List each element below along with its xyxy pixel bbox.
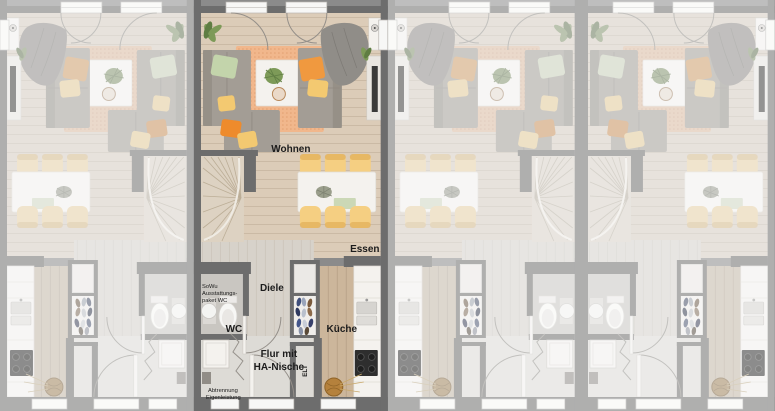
kitchen-sink	[357, 302, 377, 314]
label-wc: WC	[225, 324, 242, 335]
label-flur-1: Flur mit	[260, 349, 297, 360]
dim-overlay	[0, 0, 194, 411]
label-partition-1: Abtrennung	[208, 388, 238, 394]
unit-3[interactable]: Wohnen Essen Diele WC Küche Flur mit HA-…	[388, 0, 582, 411]
unit-1[interactable]: Wohnen Essen Diele WC Küche Flur mit HA-…	[0, 0, 194, 411]
label-wc-package-1: SoWu	[202, 284, 218, 290]
label-wc-package-3: paket WC	[202, 298, 227, 304]
label-wohnen: Wohnen	[271, 144, 310, 155]
entrance-door	[249, 399, 294, 409]
label-essen: Essen	[350, 244, 379, 255]
label-diele: Diele	[260, 283, 284, 294]
wc-door-leaf	[243, 316, 246, 354]
floorplan-drawing: Wohnen Essen Diele WC Küche Flur mit HA-…	[581, 0, 775, 411]
sink	[201, 304, 216, 319]
unit-4[interactable]: Wohnen Essen Diele WC Küche Flur mit HA-…	[581, 0, 775, 411]
dining-set	[298, 154, 376, 228]
dim-overlay	[581, 0, 775, 411]
cooktop	[355, 350, 378, 376]
floorplan-row: Wohnen Essen Diele WC Küche Flur mit HA-…	[0, 0, 775, 411]
window	[321, 399, 356, 409]
label-kueche: Küche	[326, 324, 357, 335]
bowl	[272, 88, 285, 101]
pillow-yellow	[236, 130, 257, 149]
faucet	[365, 299, 368, 302]
floorplan-drawing: Wohnen Essen Diele WC Küche Flur mit HA-…	[0, 0, 194, 411]
tv	[372, 66, 378, 112]
pillow-green	[210, 54, 238, 79]
pillow-orange	[298, 56, 325, 82]
cabinet	[202, 372, 211, 384]
pillow-yellow	[217, 95, 236, 112]
pillow-yellow	[307, 79, 329, 98]
washer	[203, 340, 229, 368]
label-elt: ELT	[302, 365, 309, 377]
label-partition-2: Eigenleistung	[206, 395, 241, 401]
centerpiece	[316, 186, 332, 198]
label-wc-package-2: Ausstattungs-	[202, 291, 237, 297]
window	[379, 20, 388, 50]
shoe-shelf	[294, 264, 316, 335]
coffee-table	[256, 60, 300, 106]
dim-overlay	[388, 0, 582, 411]
floorplan-drawing: Wohnen Essen Diele WC Küche Flur mit HA-…	[388, 0, 582, 411]
kitchen-counter	[354, 266, 381, 397]
tv-board	[367, 56, 381, 120]
floorplan-drawing: Wohnen Essen Diele WC Küche Flur mit HA-…	[194, 0, 388, 411]
label-flur-2: HA-Nische	[253, 362, 304, 373]
unit-2[interactable]: Wohnen Essen Diele WC Küche Flur mit HA-…	[194, 0, 388, 411]
